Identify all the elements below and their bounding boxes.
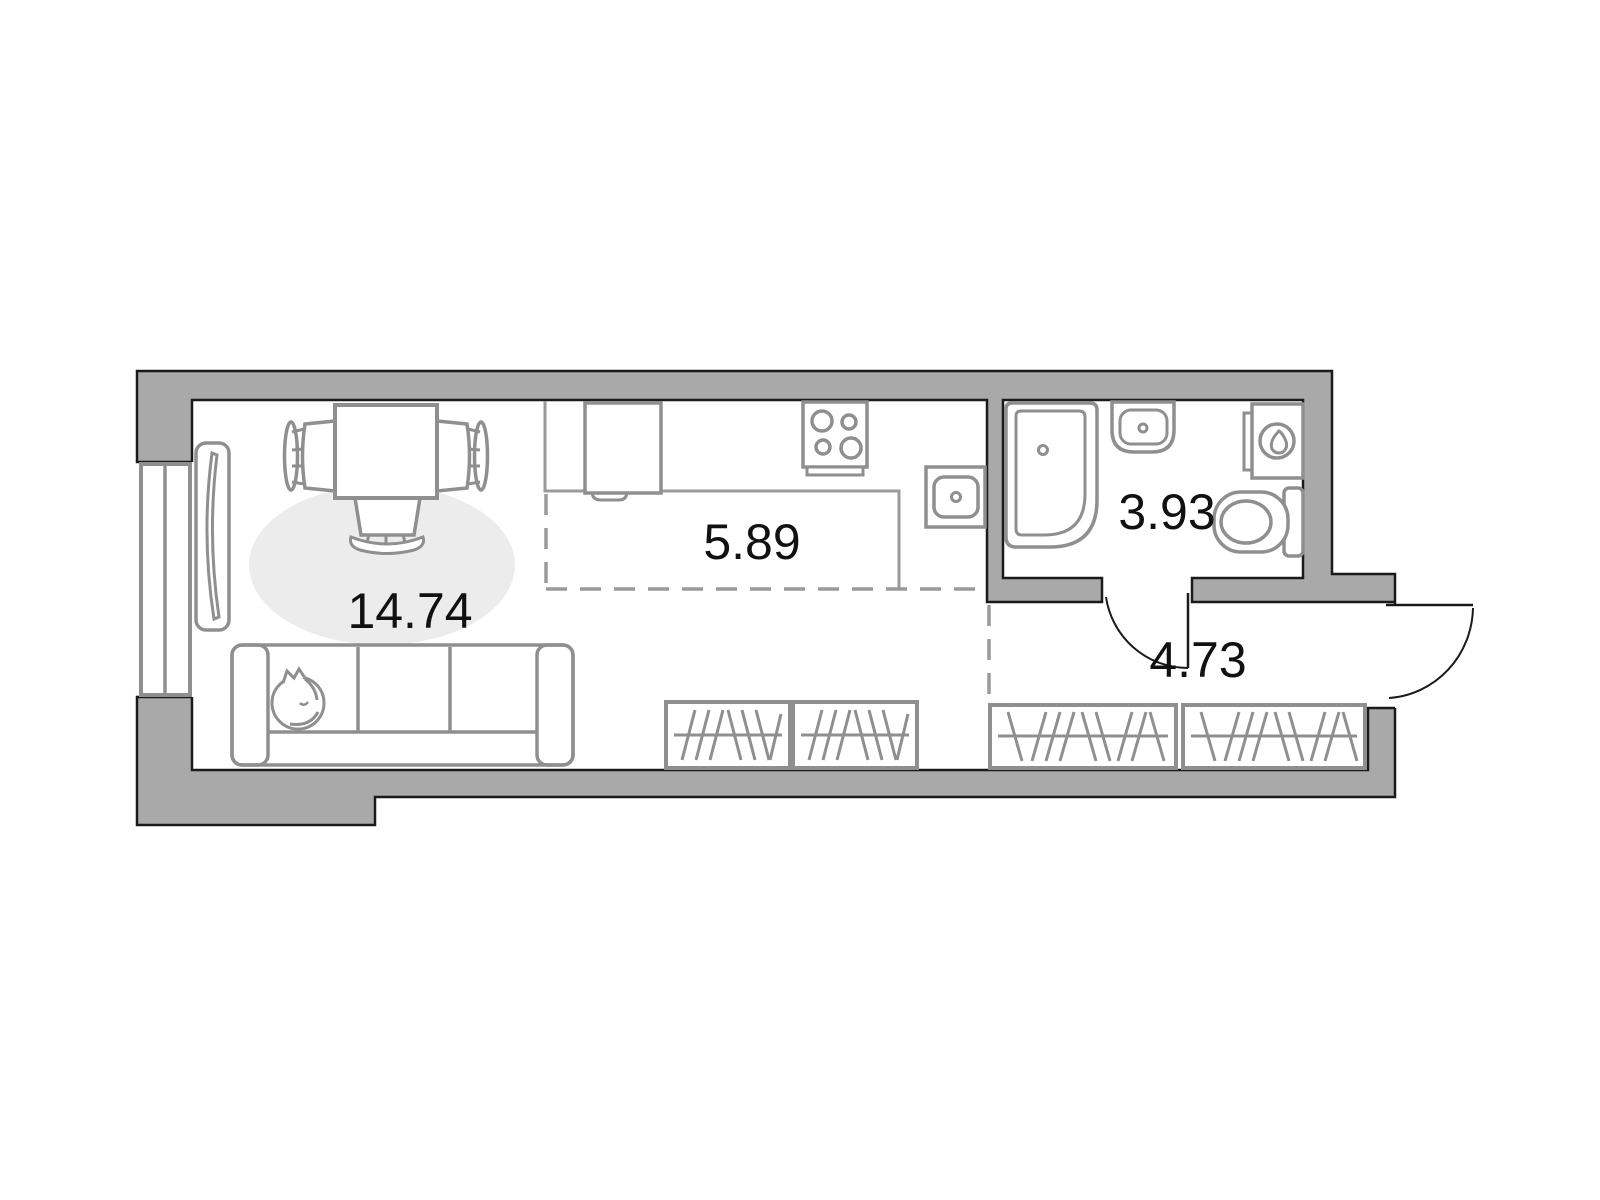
chair-left bbox=[285, 421, 336, 491]
radiator-panel bbox=[196, 443, 229, 630]
floor-plan: 14.74 5.89 3.93 4.73 bbox=[0, 0, 1600, 1200]
fridge bbox=[585, 403, 661, 493]
wall-entry-top bbox=[1332, 574, 1395, 602]
chair-right bbox=[437, 421, 488, 491]
toilet-seat bbox=[1221, 501, 1271, 543]
hallway-area-label: 4.73 bbox=[1149, 632, 1246, 688]
chair-right-seat bbox=[437, 421, 470, 491]
wardrobes bbox=[666, 702, 1365, 768]
chair-bottom bbox=[350, 498, 423, 554]
entry-door-swing-arc bbox=[1389, 608, 1473, 698]
burner-large-2 bbox=[841, 438, 861, 458]
bathtub-drain bbox=[1039, 446, 1048, 455]
kitchen-area-label: 5.89 bbox=[703, 514, 800, 570]
sofa bbox=[232, 645, 573, 765]
washing-machine bbox=[1244, 404, 1303, 478]
stove-base bbox=[807, 467, 863, 475]
bathroom-area-label: 3.93 bbox=[1118, 484, 1215, 540]
kitchen-sink-drain bbox=[952, 493, 961, 502]
burner-small-2 bbox=[816, 440, 830, 454]
cat-body bbox=[272, 677, 324, 729]
chair-left-seat bbox=[303, 421, 336, 491]
floor-plan-page: 14.74 5.89 3.93 4.73 bbox=[0, 0, 1600, 1200]
wardrobe-1 bbox=[666, 702, 790, 768]
living-room-area-label: 14.74 bbox=[347, 583, 472, 639]
entry-door bbox=[1386, 605, 1473, 698]
wall-left-upper bbox=[137, 371, 192, 462]
wash-basin-drain bbox=[1139, 424, 1147, 432]
bathtub bbox=[1006, 403, 1097, 547]
wardrobe-4 bbox=[1183, 705, 1365, 768]
burner-small-1 bbox=[842, 415, 856, 429]
chair-bottom-seat bbox=[355, 498, 420, 535]
wall-bathroom-bottom-left bbox=[987, 578, 1102, 602]
dining-table bbox=[335, 405, 437, 498]
burner-large-1 bbox=[812, 411, 832, 431]
wall-top bbox=[137, 371, 1332, 400]
window bbox=[141, 464, 190, 695]
wall-entry-stub bbox=[1368, 708, 1395, 797]
wall-bottom-thick bbox=[137, 770, 375, 825]
toilet bbox=[1214, 488, 1303, 556]
wardrobe-2 bbox=[793, 702, 917, 768]
wall-bathroom-left bbox=[987, 400, 1003, 602]
wall-bathroom-bottom-right bbox=[1192, 578, 1340, 602]
wardrobe-3 bbox=[990, 705, 1176, 768]
wall-bathroom-right bbox=[1303, 371, 1332, 578]
